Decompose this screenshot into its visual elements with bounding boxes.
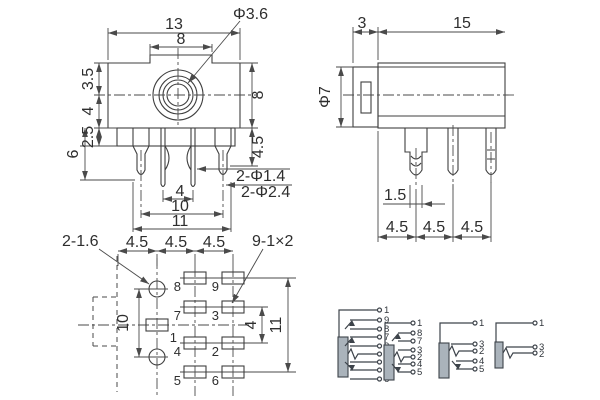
dim-side-pitch-1: 4.5: [386, 219, 408, 236]
jack-sleeve-symbol: [495, 342, 503, 368]
sch4-terminal-1: 1: [539, 318, 544, 329]
jack-sleeve-symbol: [338, 337, 348, 377]
drawing-svg: 13 8 Φ3.6 3.5 4 2.5 6 8 4.5 2-Φ1.4 2-Φ2.…: [0, 0, 600, 400]
dim-front-6: 6: [65, 149, 82, 158]
pad-label-1: 1: [170, 330, 177, 345]
pad-label-5: 5: [174, 373, 181, 388]
dim-pcb-pitch-1: 4.5: [126, 234, 148, 251]
pad-label-8: 8: [174, 279, 181, 294]
dim-front-pin-span: 11: [172, 213, 189, 230]
pad-label-7: 7: [174, 308, 181, 323]
pad-label-6: 6: [212, 373, 219, 388]
dim-front-4-left: 4: [80, 106, 97, 115]
technical-drawing-page: 13 8 Φ3.6 3.5 4 2.5 6 8 4.5 2-Φ1.4 2-Φ2.…: [0, 0, 600, 400]
dim-side-barrel-dia: Φ7: [317, 86, 334, 108]
dim-pcb-pitch-3: 4.5: [203, 234, 225, 251]
sch3-terminal-1: 1: [479, 318, 484, 329]
front-center-pin-b: [191, 128, 195, 187]
note-front-large-pins: 2-Φ2.4: [241, 184, 290, 201]
pcb-footprint-view: 2-1.6 4.5 4.5 4.5 9-1×2 10 4 11 1 8 9 7 …: [62, 233, 296, 398]
circuit-schematic-3: 1 3 2 4 5: [439, 318, 484, 378]
dim-front-body-height: 8: [250, 90, 267, 99]
note-front-small-pins: 2-Φ1.4: [236, 168, 285, 185]
side-view: Φ7 3 15 1.5 4.5 4.5 4.5: [317, 15, 517, 242]
sch2-terminal-5: 5: [417, 367, 422, 378]
pad-label-9: 9: [212, 279, 219, 294]
circuit-schematic-1: 1 9 8 7 3 2 4 5 6: [338, 305, 389, 385]
dim-pcb-hole-span: 10: [115, 314, 132, 332]
front-view: 13 8 Φ3.6 3.5 4 2.5 6 8 4.5 2-Φ1.4 2-Φ2.…: [65, 6, 292, 232]
pad-label-3: 3: [212, 308, 219, 323]
dim-side-pitch-2: 4.5: [423, 219, 445, 236]
sch4-terminal-2: 2: [539, 349, 544, 360]
front-center-pin-a: [161, 128, 165, 187]
dim-pcb-row-pitch: 4: [243, 320, 260, 329]
dim-front-boss-width: 8: [177, 31, 186, 48]
note-pcb-holes: 2-1.6: [62, 233, 99, 250]
dim-side-front-depth: 3: [358, 15, 367, 32]
pad-label-4: 4: [174, 344, 181, 359]
dim-pcb-pitch-2: 4.5: [165, 234, 187, 251]
jack-sleeve-symbol: [384, 345, 394, 380]
sch3-terminal-5: 5: [479, 364, 484, 375]
dim-front-pin-length: 4.5: [250, 136, 267, 158]
circuit-schematic-4: 1 3 2: [495, 318, 544, 368]
circuit-schematic-2: 1 8 7 3 2 4 5: [384, 318, 422, 380]
dim-side-body-length: 15: [453, 15, 471, 32]
dim-front-2_5: 2.5: [80, 126, 97, 148]
dim-side-pitch-3: 4.5: [461, 219, 483, 236]
dim-front-hole-dia: Φ3.6: [233, 6, 268, 23]
jack-sleeve-symbol: [439, 343, 449, 378]
dim-pcb-row-span: 11: [268, 317, 285, 334]
dim-front-3_5: 3.5: [80, 68, 97, 90]
note-pcb-pads: 9-1×2: [252, 233, 293, 250]
pad-label-2: 2: [212, 344, 219, 359]
dim-side-pin-thickness: 1.5: [384, 187, 406, 204]
